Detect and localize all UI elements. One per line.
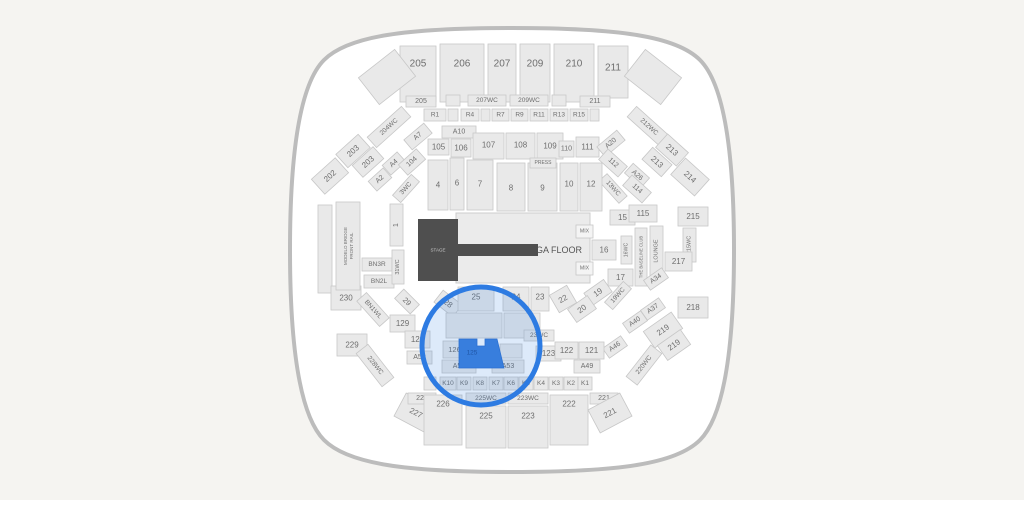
section-10[interactable]: 10 xyxy=(560,163,578,211)
section-17[interactable]: 17 xyxy=(608,269,633,286)
section-6[interactable]: 6 xyxy=(450,158,464,210)
section-222[interactable]: 222 xyxy=(550,395,588,445)
map-shape xyxy=(446,95,460,106)
section-205[interactable]: 205 xyxy=(406,96,436,107)
section-r4[interactable]: R4 xyxy=(461,109,479,121)
section-12[interactable]: 12 xyxy=(580,163,602,211)
section-r11[interactable]: R11 xyxy=(530,109,548,121)
section-218[interactable]: 218 xyxy=(678,297,708,318)
section-209wc[interactable]: 209WC xyxy=(510,95,548,106)
section-226[interactable]: 226 xyxy=(424,395,462,445)
section-k1[interactable]: K1 xyxy=(578,377,592,390)
selected-section-highlight-circle xyxy=(422,287,540,405)
section-31wc[interactable]: 31WC xyxy=(392,250,404,284)
section-a49[interactable]: A49 xyxy=(574,360,600,373)
section-r9[interactable]: R9 xyxy=(511,109,528,121)
section-the-baseline-club[interactable]: THE BASELINE CLUB xyxy=(635,228,647,286)
section-207[interactable]: 207 xyxy=(488,44,516,102)
section-211[interactable]: 211 xyxy=(598,46,628,98)
seating-map: GA FLOOR STAGE 205206207209210211205207W… xyxy=(0,0,1024,500)
section-105[interactable]: 105 xyxy=(428,139,449,155)
section-9[interactable]: 9 xyxy=(528,163,557,211)
section-23[interactable]: 23 xyxy=(531,287,549,311)
section-211[interactable]: 211 xyxy=(580,96,610,107)
section-129[interactable]: 129 xyxy=(390,315,415,332)
map-shape xyxy=(552,95,566,106)
map-shape xyxy=(590,109,599,121)
section-217[interactable]: 217 xyxy=(665,252,692,271)
map-shape xyxy=(318,205,332,293)
section-4[interactable]: 4 xyxy=(428,160,448,210)
section-a10[interactable]: A10 xyxy=(442,126,476,138)
section-k2[interactable]: K2 xyxy=(564,377,578,390)
section-215[interactable]: 215 xyxy=(678,207,708,226)
section-bn3r[interactable]: BN3R xyxy=(362,258,392,271)
section-225[interactable]: 225 xyxy=(466,406,506,448)
section-115[interactable]: 115 xyxy=(629,205,657,222)
section-110[interactable]: 110 xyxy=(559,141,574,157)
section-k3[interactable]: K3 xyxy=(549,377,563,390)
section-press[interactable]: PRESS xyxy=(530,158,556,168)
map-shape xyxy=(481,109,490,121)
stage-runway xyxy=(458,244,538,256)
section-207wc[interactable]: 207WC xyxy=(468,95,506,106)
section-8[interactable]: 8 xyxy=(497,163,525,211)
map-shape xyxy=(448,109,458,121)
seating-map-container: GA FLOOR STAGE 205206207209210211205207W… xyxy=(0,0,1024,500)
section-r13[interactable]: R13 xyxy=(550,109,568,121)
stage xyxy=(418,219,458,281)
section-210[interactable]: 210 xyxy=(554,44,594,102)
section-r7[interactable]: R7 xyxy=(492,109,509,121)
section-1[interactable]: 1 xyxy=(390,204,403,246)
section-223[interactable]: 223 xyxy=(508,406,548,448)
section-16wc[interactable]: 16WC xyxy=(621,236,632,264)
section-k4[interactable]: K4 xyxy=(534,377,548,390)
section-111[interactable]: 111 xyxy=(576,137,599,157)
section-121[interactable]: 121 xyxy=(579,342,604,359)
section-106[interactable]: 106 xyxy=(451,139,471,157)
section-122[interactable]: 122 xyxy=(555,342,578,359)
section-r15[interactable]: R15 xyxy=(570,109,588,121)
section-209[interactable]: 209 xyxy=(520,44,550,102)
section-107[interactable]: 107 xyxy=(473,133,504,159)
section-bn2l[interactable]: BN2L xyxy=(364,275,394,288)
section-modelo-bridge-front-rail[interactable]: MODELO BRIDGEFRONT RAIL xyxy=(336,202,360,290)
section-7[interactable]: 7 xyxy=(467,160,493,210)
section-mix[interactable]: MIX xyxy=(576,225,593,238)
section-r1[interactable]: R1 xyxy=(424,109,446,121)
section-108[interactable]: 108 xyxy=(506,133,535,159)
section-mix[interactable]: MIX xyxy=(576,262,593,275)
section-16[interactable]: 16 xyxy=(592,240,616,260)
section-206[interactable]: 206 xyxy=(440,44,484,102)
